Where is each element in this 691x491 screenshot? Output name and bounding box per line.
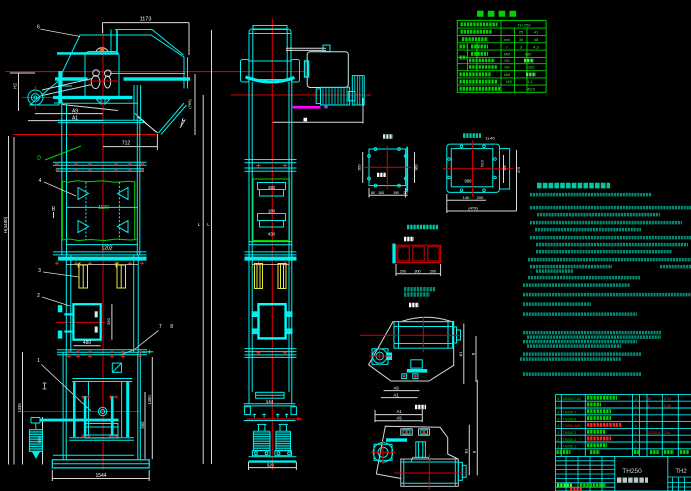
svg-text:t: t	[507, 45, 508, 49]
svg-text:712: 712	[122, 140, 131, 146]
svg-text:900: 900	[465, 179, 473, 184]
svg-text:1335: 1335	[17, 403, 22, 413]
svg-text:1: 1	[635, 404, 637, 408]
svg-text:41: 41	[534, 30, 539, 35]
svg-text:1: 1	[635, 417, 637, 421]
svg-text:KN: KN	[505, 59, 510, 63]
svg-text:A9: A9	[396, 416, 402, 421]
svg-text:6: 6	[557, 411, 559, 415]
svg-text:Q235-A: Q235-A	[648, 431, 661, 435]
svg-text:1: 1	[635, 431, 637, 435]
svg-text:KN: KN	[505, 66, 510, 70]
svg-text:8.04: 8.04	[664, 397, 671, 401]
svg-text:430: 430	[268, 232, 276, 237]
svg-text:1)-40: 1)-40	[485, 135, 495, 140]
svg-text:TH250.7: TH250.7	[563, 411, 577, 415]
svg-text:1: 1	[557, 445, 559, 449]
svg-text:350: 350	[106, 317, 111, 324]
svg-text:48: 48	[534, 37, 539, 42]
svg-text:>320: >320	[525, 65, 535, 70]
svg-text:80: 80	[371, 191, 375, 195]
svg-text:9.05: 9.05	[664, 404, 671, 408]
svg-text:200: 200	[477, 195, 484, 200]
svg-text:430: 430	[525, 52, 532, 57]
svg-text:7: 7	[159, 324, 162, 330]
svg-text:H2: H2	[13, 83, 18, 89]
svg-text:L: L	[648, 404, 650, 408]
svg-text:D: D	[37, 156, 41, 162]
svg-text:48.5: 48.5	[527, 86, 536, 91]
svg-text:TH250: TH250	[622, 468, 642, 475]
svg-text:4: 4	[557, 424, 559, 428]
svg-text:30: 30	[519, 37, 524, 42]
svg-text:GB5027-84: GB5027-84	[563, 397, 581, 401]
svg-text:TH250.1: TH250.1	[563, 445, 577, 449]
svg-text:3: 3	[38, 268, 41, 274]
svg-text:7: 7	[557, 404, 559, 408]
svg-text:TH2: TH2	[675, 469, 687, 475]
svg-text:TH250.4(8): TH250.4(8)	[563, 424, 581, 428]
svg-text:A1: A1	[393, 392, 399, 397]
svg-text:1: 1	[635, 445, 637, 449]
svg-text:MM: MM	[504, 53, 510, 57]
svg-text:4: 4	[635, 397, 637, 401]
svg-text:B1: B1	[464, 448, 469, 454]
svg-text:TH250.6: TH250.6	[563, 417, 577, 421]
svg-text:144: 144	[266, 399, 274, 404]
svg-text:A9: A9	[393, 385, 399, 390]
svg-text:300: 300	[414, 269, 420, 273]
svg-text:470: 470	[517, 167, 521, 173]
svg-text:150: 150	[378, 191, 384, 195]
svg-text:8: 8	[557, 397, 559, 401]
svg-text:25: 25	[519, 30, 524, 35]
svg-text:5: 5	[557, 417, 559, 421]
svg-text:1.1: 1.1	[527, 79, 533, 84]
svg-text:360: 360	[415, 164, 419, 170]
svg-text:1: 1	[635, 411, 637, 415]
svg-text:M: M	[648, 397, 651, 401]
svg-text:1173: 1173	[140, 17, 152, 23]
svg-text:4.3: 4.3	[533, 44, 539, 49]
svg-text:TH250.2: TH250.2	[563, 438, 577, 442]
svg-text:TH 250: TH 250	[517, 23, 531, 28]
svg-text:20: 20	[404, 191, 408, 195]
svg-text:6: 6	[37, 25, 40, 31]
svg-text:H(4480): H(4480)	[3, 216, 8, 233]
svg-text:1450: 1450	[147, 395, 152, 405]
svg-text:140: 140	[463, 195, 470, 200]
svg-text:8: 8	[170, 324, 173, 330]
svg-text:mm: mm	[504, 38, 510, 42]
svg-text:200: 200	[430, 269, 436, 273]
svg-text:190: 190	[393, 191, 399, 195]
svg-text:200: 200	[400, 269, 406, 273]
svg-text:B: B	[52, 207, 56, 213]
svg-text:1120: 1120	[98, 205, 109, 211]
svg-text:B: B	[472, 450, 477, 453]
svg-text:(769): (769)	[187, 99, 192, 109]
svg-text:4: 4	[39, 178, 42, 184]
svg-text:1544: 1544	[95, 473, 106, 479]
svg-text:R10: R10	[481, 160, 485, 166]
svg-text:A1: A1	[396, 409, 402, 414]
svg-text:250: 250	[268, 185, 276, 190]
svg-text:350: 350	[358, 164, 362, 170]
svg-text:2: 2	[557, 438, 559, 442]
svg-text:TH250.3: TH250.3	[563, 431, 577, 435]
svg-text:A9: A9	[72, 108, 78, 114]
svg-text:1: 1	[635, 438, 637, 442]
svg-text:480: 480	[83, 340, 92, 346]
svg-text:520: 520	[267, 463, 275, 468]
svg-text:(479): (479)	[468, 206, 478, 211]
svg-text:20#: 20#	[664, 431, 670, 435]
svg-text:B1: B1	[458, 351, 463, 357]
svg-text:1: 1	[635, 424, 637, 428]
svg-text:M/S: M/S	[506, 80, 513, 84]
svg-text:3: 3	[557, 431, 559, 435]
svg-text:1: 1	[37, 358, 40, 364]
svg-text:180: 180	[268, 209, 276, 214]
svg-text:2: 2	[37, 293, 40, 299]
svg-text:MM: MM	[504, 73, 510, 77]
svg-text:200: 200	[503, 165, 507, 170]
svg-text:B: B	[470, 352, 475, 355]
svg-text:1202: 1202	[101, 246, 112, 252]
